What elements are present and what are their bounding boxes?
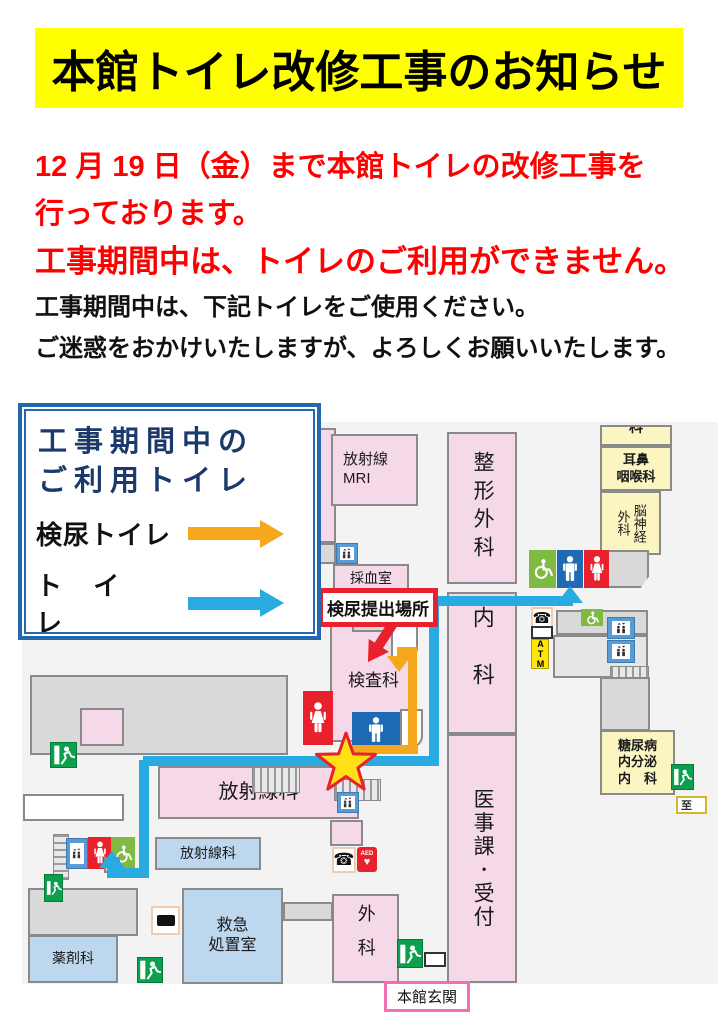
emergency-exit-icon	[50, 742, 77, 768]
notice-poster: 本館トイレ改修工事のお知らせ 12 月 19 日（金）まで本館トイレの改修工事を…	[0, 0, 718, 1022]
room-label: 脳神経外科	[614, 500, 647, 546]
room-label: 内科	[468, 606, 496, 720]
urine-route-arrow-icon	[188, 520, 284, 548]
room-label: 放射線 MRI	[343, 451, 388, 489]
notice-line-3: 工事期間中は、トイレのご利用ができません。	[35, 236, 685, 281]
toilet-route-arrow-icon	[188, 589, 284, 617]
legend-row-toilet: ト イ レ	[36, 566, 303, 640]
elevator-icon	[607, 617, 635, 639]
room-diabetes: 糖尿病 内分泌 内 科	[600, 730, 675, 795]
atm-label: ATM	[536, 639, 545, 669]
phone-glyph: ☎	[533, 609, 552, 627]
page-title: 本館トイレ改修工事のお知らせ	[51, 36, 666, 100]
room-emergency: 救急 処置室	[182, 888, 283, 984]
room-label: 医事課･受付	[469, 788, 495, 929]
emergency-exit-icon	[44, 874, 63, 902]
aed-icon: AED♥	[357, 847, 377, 872]
phone-icon: ☎	[332, 847, 356, 873]
legend-label: 検尿トイレ	[36, 515, 188, 552]
room-label: 耳鼻 咽喉科	[616, 452, 655, 485]
entrance-door-sign	[424, 952, 446, 967]
room-white-west	[23, 794, 124, 821]
wheelchair-icon	[581, 609, 603, 626]
room-medical-affairs: 医事課･受付	[447, 734, 517, 983]
atm-sign: ATM	[531, 639, 549, 669]
mens-toilet-icon	[557, 550, 583, 588]
elevator-icon	[607, 640, 635, 663]
elevator-icon	[337, 792, 359, 813]
destination-label: 至	[681, 797, 692, 813]
urine-submission-sign: 検尿提出場所	[318, 588, 438, 627]
room-partial-top: 科	[600, 425, 672, 446]
phone-glyph: ☎	[333, 850, 354, 870]
room-label: 採血室	[350, 570, 392, 588]
room-surgery: 外科	[332, 894, 399, 983]
room-radiology-sub: 放射線科	[155, 837, 261, 870]
room-pharmacy: 薬剤科	[28, 935, 118, 983]
gray-toilet-tail	[607, 550, 649, 588]
gray-room-east-c	[600, 677, 650, 731]
emergency-exit-icon	[137, 957, 163, 983]
legend-row-urine: 検尿トイレ	[36, 515, 303, 552]
room-label: 整形外科	[469, 451, 495, 564]
heart-glyph: ♥	[364, 857, 371, 868]
wheelchair-icon	[529, 550, 556, 588]
legend-label: ト イ レ	[36, 566, 188, 640]
room-radiology-mri: 放射線 MRI	[331, 434, 418, 506]
information-display	[151, 906, 180, 935]
toilet-route-segment	[429, 596, 573, 606]
toilet-route-arrowhead	[99, 851, 125, 868]
toilet-route-segment	[139, 760, 149, 878]
main-entrance-sign: 本館玄関	[384, 981, 470, 1012]
room-internal-medicine: 内科	[447, 592, 517, 734]
room-label: 外科	[354, 904, 377, 972]
toilet-route-segment	[143, 756, 437, 766]
urine-submission-label: 検尿提出場所	[327, 595, 429, 620]
room-orthopedics: 整形外科	[447, 432, 517, 584]
notice-line-5: ご迷惑をおかけいたしますが、よろしくお願いいたします。	[35, 328, 680, 363]
floor-map: 放射線 MRI 採血室 整形外科 内科 医事課･受付 検査科 科 耳鼻 咽喉科 …	[0, 400, 718, 1022]
room-label: 薬剤科	[52, 950, 94, 968]
destination-sign: 至	[676, 796, 707, 814]
room-neurosurgery: 脳神経外科	[600, 491, 661, 555]
room-small-pink-west	[80, 708, 124, 746]
room-label: 検査科	[348, 670, 399, 691]
room-label: 救急 処置室	[208, 916, 256, 956]
stairs-icon	[252, 767, 300, 793]
room-small-pink-south	[330, 820, 363, 846]
legend-box: 工事期間中の ご利用トイレ 検尿トイレ ト イ レ	[18, 403, 321, 640]
notice-line-2: 行っております。	[35, 190, 262, 232]
title-banner: 本館トイレ改修工事のお知らせ	[35, 28, 683, 108]
toilet-route-arrowhead	[557, 586, 583, 603]
notice-line-4: 工事期間中は、下記トイレをご使用ください。	[35, 287, 539, 322]
elevator-icon	[66, 838, 88, 869]
toilet-route-segment	[107, 868, 149, 878]
room-ent: 耳鼻 咽喉科	[600, 446, 672, 491]
legend-title: 工事期間中の ご利用トイレ	[38, 423, 303, 501]
main-entrance-label: 本館玄関	[397, 986, 457, 1007]
emergency-exit-icon	[397, 939, 423, 968]
sign-board	[531, 626, 553, 639]
womens-toilet-icon	[584, 550, 609, 588]
notice-line-1: 12 月 19 日（金）まで本館トイレの改修工事を	[35, 143, 646, 185]
current-location-star	[312, 730, 380, 794]
elevator-icon	[336, 543, 358, 564]
gray-band-er-right	[283, 902, 333, 921]
room-label: 糖尿病 内分泌 内 科	[618, 738, 657, 787]
stairs-icon	[610, 666, 649, 678]
room-label: 放射線科	[180, 845, 236, 863]
emergency-exit-icon	[671, 764, 694, 790]
room-label: 科	[629, 425, 643, 437]
